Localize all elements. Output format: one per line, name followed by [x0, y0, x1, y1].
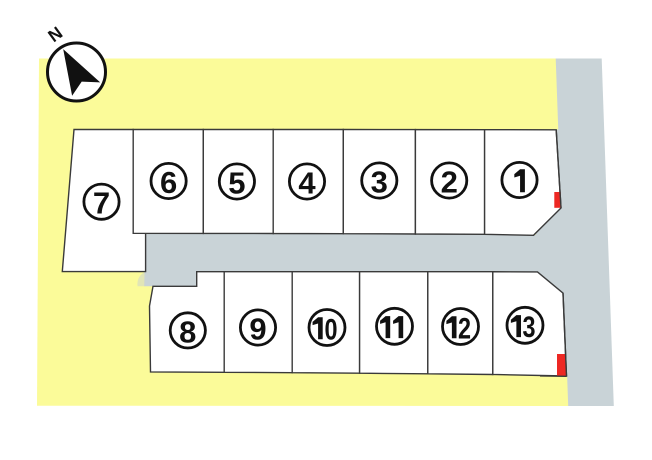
svg-text:3: 3 [371, 165, 388, 200]
svg-text:8: 8 [179, 314, 196, 349]
svg-text:2: 2 [458, 312, 471, 345]
svg-text:3: 3 [523, 310, 536, 343]
svg-text:2: 2 [441, 165, 458, 200]
svg-text:9: 9 [249, 312, 266, 347]
svg-text:4: 4 [298, 166, 316, 201]
svg-text:7: 7 [93, 186, 110, 221]
svg-text:0: 0 [325, 313, 338, 346]
svg-text:5: 5 [228, 166, 245, 201]
svg-text:6: 6 [160, 165, 177, 200]
svg-text:N: N [44, 22, 66, 46]
